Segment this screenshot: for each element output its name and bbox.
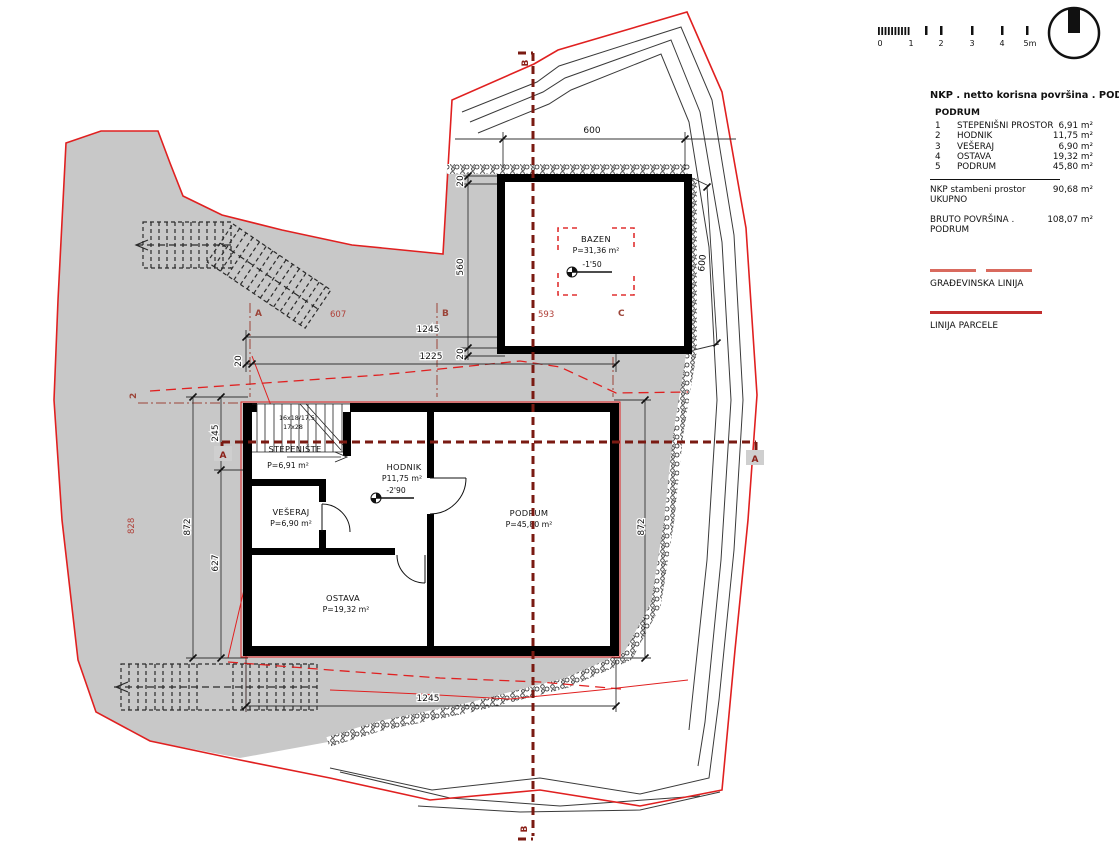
room-area-hodnik: P11,75 m² bbox=[382, 474, 422, 483]
dim-left-245: 245 bbox=[211, 424, 221, 441]
room-area-podrum: P=45,80 m² bbox=[506, 520, 553, 529]
room-label-veseraj: VEŠERAJ bbox=[272, 506, 309, 517]
row-name: VEŠERAJ bbox=[957, 142, 1059, 152]
room-label-bazen: BAZEN bbox=[581, 234, 611, 244]
grid-label-c: C bbox=[618, 309, 625, 319]
dim-wall-20: 20 bbox=[234, 355, 244, 367]
room-level-hodnik: -2'90 bbox=[386, 486, 405, 495]
table-title: NKP . netto korisna površina . PODRUM bbox=[930, 90, 1093, 101]
section-label-b-bottom: B bbox=[520, 825, 530, 832]
room-area-veseraj: P=6,90 m² bbox=[270, 519, 312, 528]
dim-bottom-1245: 1245 bbox=[417, 694, 440, 704]
site-dim-593: 593 bbox=[538, 310, 554, 320]
room-label-podrum: PODRUM bbox=[510, 508, 549, 518]
room-label-ostava: OSTAVA bbox=[326, 593, 360, 603]
stair-note-2: 17x28 bbox=[283, 424, 303, 431]
section-label-a-right: A bbox=[752, 455, 759, 465]
row-name: PODRUM bbox=[957, 162, 1053, 172]
site-dim-607: 607 bbox=[330, 310, 346, 320]
scale-tick-2: 2 bbox=[938, 39, 943, 48]
table-bruto-row: BRUTO POVRŠINA . PODRUM 108,07 m² bbox=[930, 215, 1093, 235]
bruto-value: 108,07 m² bbox=[1047, 215, 1093, 235]
row-name: HODNIK bbox=[957, 131, 1053, 141]
stair-note-1: 16x18/17,5 bbox=[279, 415, 315, 422]
scale-tick-0: 0 bbox=[877, 39, 882, 48]
table-group-header: PODRUM bbox=[935, 108, 1093, 118]
table-row: 5 PODRUM 45,80 m² bbox=[930, 162, 1093, 172]
room-area-ostava: P=19,32 m² bbox=[323, 605, 370, 614]
room-area-bazen: P=31,36 m² bbox=[573, 246, 620, 255]
dim-left-872: 872 bbox=[183, 518, 193, 535]
scale-tick-3: 3 bbox=[969, 39, 974, 48]
room-level-bazen: -1'50 bbox=[582, 260, 601, 269]
grid-label-a: A bbox=[255, 309, 262, 319]
table-row: 3 VEŠERAJ 6,90 m² bbox=[930, 142, 1093, 152]
row-value: 6,90 m² bbox=[1059, 142, 1093, 152]
dim-left-627: 627 bbox=[211, 554, 221, 571]
scale-tick-4: 4 bbox=[999, 39, 1004, 48]
area-table: NKP . netto korisna površina . PODRUM PO… bbox=[930, 90, 1093, 335]
grid-label-2: 2 bbox=[129, 393, 139, 399]
building-line-swatch bbox=[930, 269, 1093, 272]
total-value: 90,68 m² bbox=[1053, 185, 1093, 205]
parcel-line-swatch bbox=[930, 311, 1042, 314]
room-area-stepeniste: P=6,91 m² bbox=[267, 461, 309, 470]
dim-width-1225: 1225 bbox=[420, 352, 443, 362]
table-divider bbox=[930, 179, 1060, 180]
scale-tick-1: 1 bbox=[908, 39, 913, 48]
scale-tick-5m: 5m bbox=[1024, 39, 1037, 48]
bruto-label: BRUTO POVRŠINA . PODRUM bbox=[930, 215, 1047, 235]
dim-pool-wall-20-bottom: 20 bbox=[456, 348, 466, 360]
table-row: 2 HODNIK 11,75 m² bbox=[930, 131, 1093, 141]
dim-right-600: 600 bbox=[697, 254, 709, 272]
dim-width-1245: 1245 bbox=[417, 325, 440, 335]
section-label-b-top: B bbox=[521, 59, 531, 66]
dim-top-600: 600 bbox=[583, 126, 600, 136]
row-number: 3 bbox=[930, 142, 957, 152]
line-legend: GRAĐEVINSKA LINIJA LINIJA PARCELE bbox=[930, 269, 1093, 331]
row-value: 6,91 m² bbox=[1059, 121, 1093, 131]
table-total-row: NKP stambeni prostor UKUPNO 90,68 m² bbox=[930, 185, 1093, 205]
parcel-line-label: LINIJA PARCELE bbox=[930, 321, 1093, 331]
table-row: 1 STEPENIŠNI PROSTOR 6,91 m² bbox=[930, 121, 1093, 131]
row-value: 11,75 m² bbox=[1053, 131, 1093, 141]
dim-pool-wall-20-top: 20 bbox=[456, 175, 466, 187]
scale-bar: 0 1 2 3 4 5m bbox=[877, 26, 1036, 48]
building-line-label: GRAĐEVINSKA LINIJA bbox=[930, 279, 1093, 289]
dim-pool-560: 560 bbox=[456, 258, 466, 275]
row-number: 2 bbox=[930, 131, 957, 141]
site-dim-828: 828 bbox=[127, 518, 137, 534]
row-number: 1 bbox=[930, 121, 957, 131]
table-row: 4 OSTAVA 19,32 m² bbox=[930, 152, 1093, 162]
total-label: NKP stambeni prostor UKUPNO bbox=[930, 185, 1053, 205]
section-label-a-left: A bbox=[220, 451, 227, 461]
grid-label-b: B bbox=[442, 309, 449, 319]
floor-plan-sheet: { "title_block": { "title": "NKP . netto… bbox=[0, 0, 1119, 848]
row-number: 5 bbox=[930, 162, 957, 172]
dim-right-872: 872 bbox=[637, 518, 647, 535]
row-value: 45,80 m² bbox=[1053, 162, 1093, 172]
row-name: STEPENIŠNI PROSTOR bbox=[957, 121, 1059, 131]
north-arrow-icon bbox=[1049, 8, 1099, 58]
room-label-stepeniste: STEPENIŠTE bbox=[268, 443, 321, 454]
row-value: 19,32 m² bbox=[1053, 152, 1093, 162]
row-name: OSTAVA bbox=[957, 152, 1053, 162]
room-label-hodnik: HODNIK bbox=[386, 462, 421, 472]
row-number: 4 bbox=[930, 152, 957, 162]
